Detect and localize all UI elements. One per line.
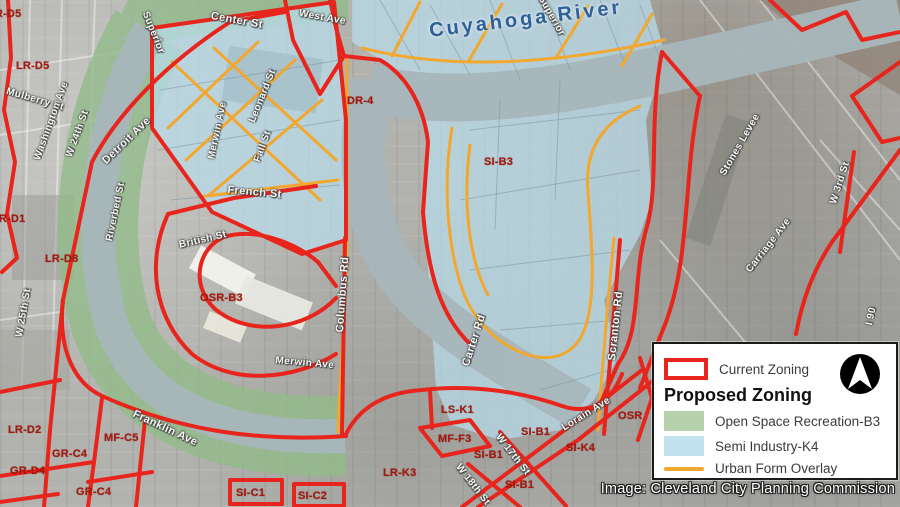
open-space-label: Open Space Recreation-B3 [715, 414, 880, 429]
legend-urban-form-row: Urban Form Overlay [664, 461, 886, 476]
legend-semi-industry-row: Semi Industry-K4 [664, 436, 886, 456]
attribution-text: Image: Cleveland City Planning Commissio… [601, 481, 895, 497]
zone-label: LR-D1 [0, 213, 25, 225]
zone-label: MF-F3 [438, 433, 471, 445]
zoning-map: Center StSuperiorSuperiorMulberry StWash… [0, 0, 900, 507]
zone-label: MF-C5 [104, 432, 139, 444]
zone-label: LR-D8 [45, 253, 78, 265]
legend-open-space-row: Open Space Recreation-B3 [664, 411, 886, 431]
urban-form-label: Urban Form Overlay [715, 461, 837, 476]
zone-label: LR-D2 [8, 424, 41, 436]
semi-industry-swatch [664, 436, 704, 456]
zone-label: SI-C2 [298, 490, 327, 502]
zone-label: LR-D5 [16, 60, 49, 72]
zone-label: LR-K3 [383, 467, 416, 479]
urban-form-swatch [664, 467, 704, 471]
zone-label: SI-B1 [474, 449, 503, 461]
zone-label: SI-C1 [236, 487, 265, 499]
current-zoning-label: Current Zoning [719, 362, 809, 377]
zone-label: LS-K1 [441, 404, 474, 416]
zone-label: SI-B1 [505, 479, 534, 491]
zone-label: GR-C4 [76, 486, 111, 498]
zone-label: GR-C4 [52, 448, 87, 460]
north-arrow-icon [838, 352, 882, 396]
zone-label: SI-B1 [521, 426, 550, 438]
zone-label: DR-4 [347, 95, 373, 107]
current-zoning-swatch [664, 358, 708, 380]
zone-label: OSR [618, 410, 642, 422]
open-space-swatch [664, 411, 704, 431]
zone-label: SI-K4 [566, 442, 595, 454]
semi-industry-label: Semi Industry-K4 [715, 439, 819, 454]
legend: Current Zoning Proposed Zoning Open Spac… [652, 342, 898, 480]
zone-label: GR-D4 [10, 465, 45, 477]
zone-label: OSR-B3 [200, 292, 243, 304]
zone-label: SI-B3 [484, 156, 513, 168]
zone-label: LR-D5 [0, 8, 21, 20]
